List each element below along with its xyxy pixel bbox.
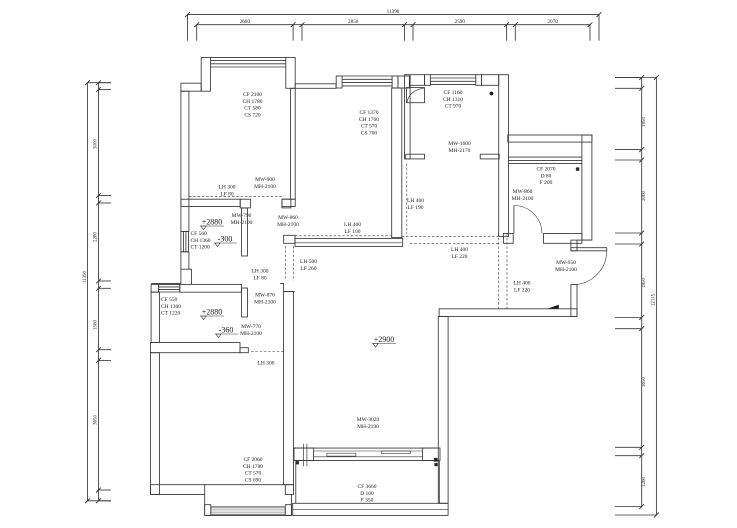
svg-text:LH 300: LH 300 [258, 361, 275, 367]
svg-text:CT 580: CT 580 [244, 106, 261, 112]
svg-text:CF 1160: CF 1160 [444, 90, 463, 96]
svg-text:CT 970: CT 970 [445, 104, 462, 110]
svg-text:LH 300: LH 300 [252, 269, 269, 275]
svg-text:2070: 2070 [547, 19, 558, 25]
svg-text:MH-2100: MH-2100 [240, 331, 262, 337]
svg-text:CT 570: CT 570 [245, 471, 262, 477]
svg-text:LF 80: LF 80 [253, 275, 267, 281]
svg-text:LH 400: LH 400 [451, 247, 468, 253]
svg-text:MH-2100: MH-2100 [512, 196, 534, 202]
svg-text:MH-2190: MH-2190 [357, 424, 379, 430]
svg-text:1850: 1850 [642, 278, 647, 289]
svg-text:CF 550: CF 550 [161, 297, 178, 303]
svg-text:D 80: D 80 [541, 173, 552, 179]
svg-text:3650: 3650 [642, 377, 647, 388]
svg-text:MW-3020: MW-3020 [357, 417, 380, 423]
svg-text:CF 1370: CF 1370 [359, 110, 378, 116]
svg-text:2680: 2680 [240, 19, 251, 25]
svg-text:LH 400: LH 400 [514, 281, 531, 287]
svg-text:CF 2100: CF 2100 [243, 92, 262, 98]
svg-text:1260: 1260 [642, 477, 647, 488]
svg-text:MW-900: MW-900 [255, 177, 275, 183]
svg-text:MW-950: MW-950 [556, 260, 576, 266]
svg-text:LF 80: LF 80 [220, 191, 234, 197]
svg-text:CH 1760: CH 1760 [359, 117, 379, 123]
svg-text:MH-2100: MH-2100 [254, 184, 276, 190]
svg-text:LH 500: LH 500 [300, 259, 317, 265]
svg-text:CH 1310: CH 1310 [443, 97, 463, 103]
svg-text:2590: 2590 [455, 19, 466, 25]
svg-text:11390: 11390 [83, 270, 88, 283]
svg-text:CS 700: CS 700 [361, 130, 378, 136]
svg-text:LF 220: LF 220 [451, 254, 467, 260]
svg-text:-360: -360 [219, 326, 234, 335]
svg-text:CH 1780: CH 1780 [243, 464, 263, 470]
svg-text:MW-860: MW-860 [278, 215, 298, 221]
svg-text:F 200: F 200 [540, 180, 553, 186]
svg-text:LH 400: LH 400 [344, 222, 361, 228]
svg-text:2060: 2060 [642, 191, 647, 202]
svg-text:MH-2100: MH-2100 [277, 222, 299, 228]
svg-text:11390: 11390 [387, 9, 400, 15]
svg-text:D 100: D 100 [360, 491, 374, 497]
svg-text:12115: 12115 [652, 293, 657, 306]
svg-text:+2880: +2880 [202, 218, 223, 227]
svg-text:CH 1360: CH 1360 [161, 304, 181, 310]
svg-text:MW-1600: MW-1600 [448, 141, 471, 147]
svg-text:3650: 3650 [94, 415, 99, 426]
svg-text:CF 2060: CF 2060 [243, 457, 262, 463]
svg-text:CS 690: CS 690 [245, 477, 262, 483]
svg-text:CS 720: CS 720 [244, 112, 261, 118]
svg-text:MW-770: MW-770 [241, 324, 261, 330]
svg-text:LH 300: LH 300 [219, 185, 236, 191]
svg-text:LF 190: LF 190 [407, 205, 423, 211]
svg-text:MH-2100: MH-2100 [555, 267, 577, 273]
svg-text:MH-2170: MH-2170 [449, 148, 471, 154]
svg-text:LF 220: LF 220 [514, 287, 530, 293]
svg-text:MW-860: MW-860 [513, 189, 533, 195]
svg-text:3000: 3000 [94, 139, 99, 150]
svg-text:F 350: F 350 [361, 497, 374, 503]
svg-text:CF 2070: CF 2070 [536, 167, 555, 173]
svg-text:CF 3660: CF 3660 [357, 484, 376, 490]
svg-text:CH 1360: CH 1360 [191, 238, 211, 244]
svg-text:CT 1200: CT 1200 [191, 245, 211, 251]
svg-text:LF 260: LF 260 [300, 266, 316, 272]
svg-text:LH 400: LH 400 [407, 198, 424, 204]
svg-text:CT 1220: CT 1220 [161, 311, 181, 317]
svg-text:1850: 1850 [642, 117, 647, 128]
svg-text:MW-870: MW-870 [255, 293, 275, 299]
svg-text:CT 570: CT 570 [361, 124, 378, 130]
svg-text:MH-2100: MH-2100 [254, 300, 276, 306]
svg-text:LF 100: LF 100 [344, 229, 360, 235]
svg-text:2850: 2850 [348, 19, 359, 25]
svg-text:CF 560: CF 560 [191, 231, 208, 237]
svg-text:-300: -300 [218, 235, 233, 244]
svg-text:2280: 2280 [94, 232, 99, 243]
svg-text:1560: 1560 [94, 320, 99, 331]
svg-text:+2880: +2880 [202, 308, 223, 317]
svg-text:CH 1780: CH 1780 [242, 99, 262, 105]
svg-text:+2900: +2900 [374, 335, 395, 344]
